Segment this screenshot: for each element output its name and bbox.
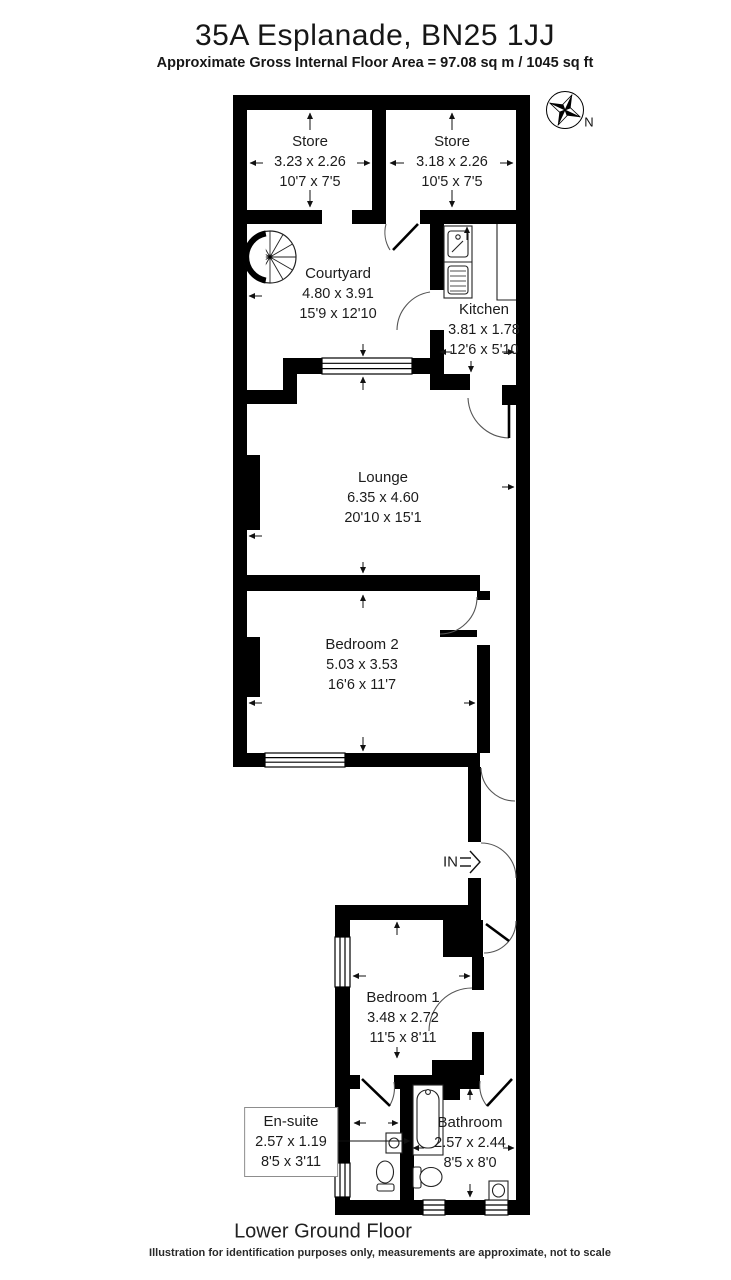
room-name: Bathroom: [434, 1113, 506, 1133]
room-dim-metric: 4.80 x 3.91: [299, 284, 376, 304]
floor-name-label: Lower Ground Floor: [234, 1221, 412, 1244]
entrance-label: IN: [443, 854, 458, 871]
room-label-courtyard: Courtyard 4.80 x 3.91 15'9 x 12'10: [299, 264, 376, 324]
kitchen-sink-unit: [444, 226, 472, 298]
ensuite-toilet-icon: [377, 1161, 395, 1191]
room-label-bedroom-1: Bedroom 1 3.48 x 2.72 11'5 x 8'11: [366, 988, 439, 1048]
room-name: Lounge: [344, 468, 421, 488]
bedroom2-window: [265, 753, 345, 767]
room-label-store-2: Store 3.18 x 2.26 10'5 x 7'5: [416, 132, 488, 192]
room-dim-imperial: 16'6 x 11'7: [325, 675, 398, 695]
room-label-bedroom-2: Bedroom 2 5.03 x 3.53 16'6 x 11'7: [325, 635, 398, 695]
room-dim-metric: 3.81 x 1.78: [448, 320, 520, 340]
room-dim-metric: 3.48 x 2.72: [366, 1008, 439, 1028]
room-dim-imperial: 10'7 x 7'5: [274, 172, 346, 192]
room-dim-imperial: 15'9 x 12'10: [299, 304, 376, 324]
entrance-arrow-icon: [460, 851, 480, 873]
bedroom1-window: [335, 937, 350, 987]
room-name: Kitchen: [448, 300, 520, 320]
room-label-lounge: Lounge 6.35 x 4.60 20'10 x 15'1: [344, 468, 421, 528]
room-dim-metric: 6.35 x 4.60: [344, 488, 421, 508]
room-dim-imperial: 12'6 x 5'10: [448, 340, 520, 360]
room-name: Bedroom 1: [366, 988, 439, 1008]
room-dim-metric: 3.23 x 2.26: [274, 152, 346, 172]
courtyard-window: [322, 358, 412, 374]
compass-icon: [547, 92, 584, 129]
room-dim-metric: 5.03 x 3.53: [325, 655, 398, 675]
room-name: Store: [274, 132, 346, 152]
room-label-ensuite: En-suite 2.57 x 1.19 8'5 x 3'11: [244, 1107, 338, 1177]
north-label: N: [584, 115, 593, 130]
room-name: Bedroom 2: [325, 635, 398, 655]
bathroom-rear-window: [485, 1200, 508, 1215]
room-name: Store: [416, 132, 488, 152]
room-dim-imperial: 10'5 x 7'5: [416, 172, 488, 192]
ensuite-rear-window: [423, 1200, 445, 1215]
room-label-store-1: Store 3.23 x 2.26 10'7 x 7'5: [274, 132, 346, 192]
room-dim-metric: 3.18 x 2.26: [416, 152, 488, 172]
kitchen-counter: [497, 224, 516, 300]
room-label-kitchen: Kitchen 3.81 x 1.78 12'6 x 5'10: [448, 300, 520, 360]
room-dim-metric: 2.57 x 2.44: [434, 1133, 506, 1153]
room-dim-imperial: 20'10 x 15'1: [344, 508, 421, 528]
room-name: Courtyard: [299, 264, 376, 284]
room-label-bathroom: Bathroom 2.57 x 2.44 8'5 x 8'0: [434, 1113, 506, 1173]
room-name: En-suite: [255, 1112, 327, 1132]
disclaimer-text: Illustration for identification purposes…: [149, 1247, 611, 1259]
room-dim-imperial: 11'5 x 8'11: [366, 1028, 439, 1048]
room-dim-imperial: 8'5 x 8'0: [434, 1153, 506, 1173]
ensuite-sink-icon: [386, 1133, 402, 1153]
spiral-staircase-icon: [244, 231, 296, 283]
room-dim-imperial: 8'5 x 3'11: [255, 1152, 327, 1172]
floorplan-page: 35A Esplanade, BN25 1JJ Approximate Gros…: [0, 0, 731, 1280]
bathroom-sink-icon: [489, 1181, 508, 1200]
room-dim-metric: 2.57 x 1.19: [255, 1132, 327, 1152]
